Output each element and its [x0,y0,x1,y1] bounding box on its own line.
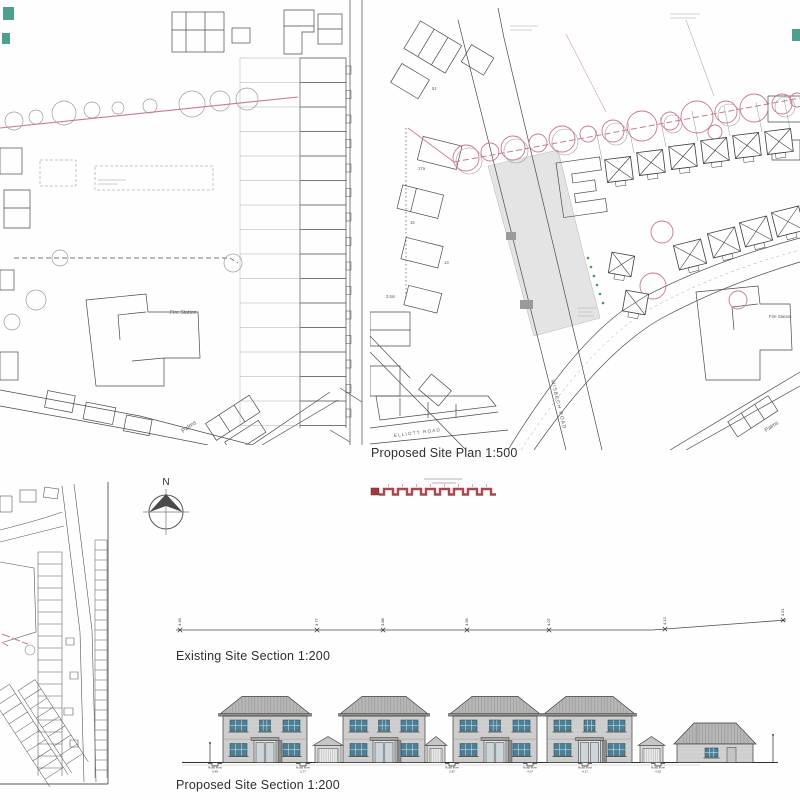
existing-site-plan: Fire Station Palms [0,0,365,445]
svg-text:4.17: 4.17 [582,769,588,773]
section-garage [638,737,665,763]
section-house [449,697,542,763]
road-level-marker: Road level3.77 [296,764,310,774]
fire-station-label-existing: Fire Station [170,310,197,316]
proposed-plan-linework [370,8,800,450]
section-house [339,697,430,763]
section-garage [425,737,447,763]
svg-text:4.12: 4.12 [662,616,667,625]
svg-text:3.88: 3.88 [380,617,385,626]
svg-text:3.87: 3.87 [449,769,455,773]
road-level-marker: Road level3.49 [208,764,222,774]
section-house [543,697,637,763]
proposed-site-plan: 51 17a 15 13 3.5m WISBECH ROAD ELLIOTT R… [370,0,800,450]
fence-detail-drawing [366,476,526,504]
palms-label-existing: Palms [181,420,198,434]
wisbech-road-label: WISBECH ROAD [549,379,567,430]
elliott-road-label: ELLIOTT ROAD [394,427,442,438]
location-plan [0,482,115,792]
road-level-marker: Road level3.87 [445,764,459,774]
plot-13-label: 13 [444,260,449,265]
svg-text:3.49: 3.49 [212,769,218,773]
proposed-site-plan-caption: Proposed Site Plan 1:500 [371,446,518,460]
fire-station-label-proposed: Fire Station [769,314,792,319]
svg-text:3.49: 3.49 [177,617,182,626]
drawing-sheet: Fire Station Palms [0,0,800,800]
plot-51-label: 51 [432,86,437,91]
north-label: N [162,477,169,488]
location-plan-linework [0,482,108,784]
dimension-label: 3.5m [386,294,396,299]
existing-section-drawing: 3.493.773.883.954.074.124.21 [172,597,794,643]
section-garage [313,737,343,763]
palms-label-proposed: Palms [764,420,780,433]
road-level-marker: Road level4.17 [578,764,592,774]
existing-site-section-caption: Existing Site Section 1:200 [176,649,330,663]
boundary-return-pink [408,128,454,162]
svg-text:4.35: 4.35 [655,769,661,773]
proposed-section-drawing: Road level3.49Road level3.77Road level3.… [180,686,780,776]
plot-15-label: 15 [410,220,415,225]
plot-17a-label: 17a [418,166,426,171]
svg-text:3.77: 3.77 [300,769,306,773]
fence-note-text-blur [424,479,462,483]
svg-text:4.21: 4.21 [780,608,785,617]
svg-text:4.07: 4.07 [546,617,551,626]
north-arrow: N [138,474,194,538]
svg-text:3.77: 3.77 [314,617,319,626]
site-boundary-pink [0,97,298,128]
section-bungalow [674,723,756,763]
road-level-marker: Road level4.07 [523,764,537,774]
road-level-marker: Road level4.35 [651,764,665,774]
proposed-site-section-caption: Proposed Site Section 1:200 [176,778,340,792]
section-house [219,697,312,763]
existing-plan-linework [0,10,362,445]
svg-text:3.95: 3.95 [464,617,469,626]
svg-text:4.07: 4.07 [527,769,533,773]
